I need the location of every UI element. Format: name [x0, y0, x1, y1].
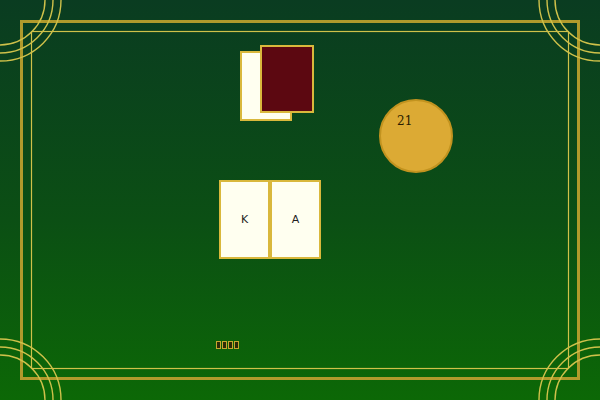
card-king[interactable]: K: [219, 180, 270, 259]
bet-marker-icon: [234, 341, 239, 349]
bet-marker-icon: [222, 341, 227, 349]
table-surface: 21 K A: [0, 0, 600, 400]
card-rank: A: [292, 213, 300, 226]
card-back-icon: [260, 45, 314, 113]
card-ace[interactable]: A: [270, 180, 321, 259]
bet-marker-icon: [216, 341, 221, 349]
bet-marker-row: [216, 341, 239, 349]
bet-marker-icon: [228, 341, 233, 349]
chip-label: 21: [397, 114, 412, 128]
chip-21-token[interactable]: 21: [379, 99, 453, 173]
card-rank: K: [241, 213, 248, 226]
